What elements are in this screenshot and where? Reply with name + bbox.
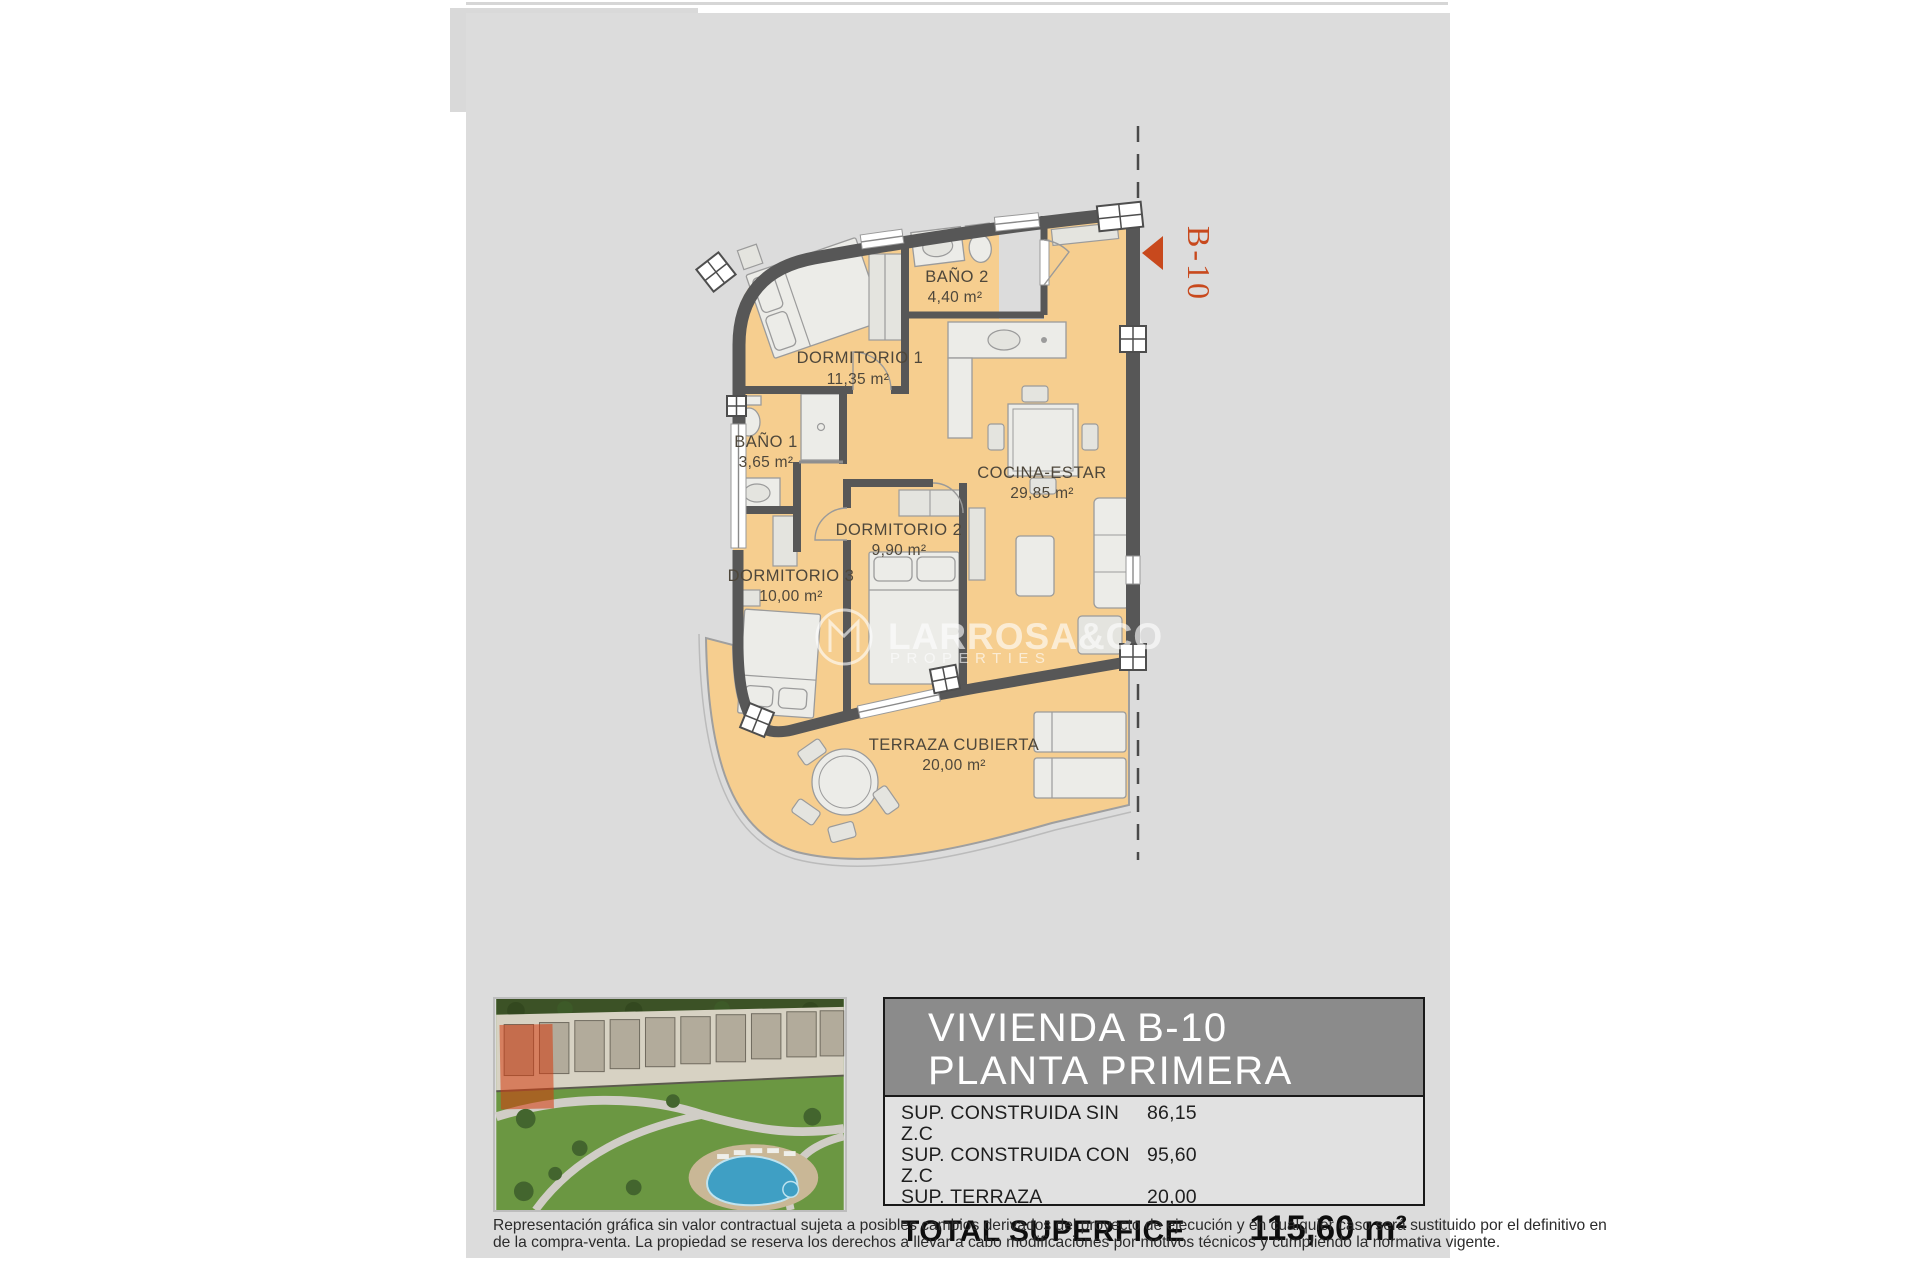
title-line-2: PLANTA PRIMERA — [928, 1050, 1423, 1093]
room-area-cocina-estar: 29,85 m² — [1010, 485, 1074, 502]
measurement-row: SUP. TERRAZA 20,00 — [901, 1187, 1409, 1208]
aerial-photo — [493, 997, 847, 1212]
disclaimer-line-2: de la compra-venta. La propiedad se rese… — [493, 1235, 1438, 1252]
room-area-dormitorio-2: 9,90 m² — [872, 542, 927, 559]
measurement-label: SUP. CONSTRUIDA CON Z.C — [901, 1145, 1147, 1187]
disclaimer-line-1: Representación gráfica sin valor contrac… — [493, 1218, 1438, 1235]
measurement-value: 20,00 — [1147, 1187, 1197, 1208]
measurement-label: SUP. CONSTRUIDA SIN Z.C — [901, 1103, 1147, 1145]
measurement-row: SUP. CONSTRUIDA SIN Z.C 86,15 — [901, 1103, 1409, 1145]
room-label-bano-2: BAÑO 2 — [925, 266, 989, 286]
room-label-terraza: TERRAZA CUBIERTA — [869, 736, 1040, 754]
plan-sheet-page: BAÑO 2 4,40 m² DORMITORIO 1 11,35 m² BAÑ… — [0, 0, 1920, 1280]
room-label-dormitorio-3: DORMITORIO 3 — [728, 567, 855, 585]
room-label-dormitorio-1: DORMITORIO 1 — [797, 349, 924, 367]
room-area-dormitorio-1: 11,35 m² — [827, 371, 889, 388]
room-area-dormitorio-3: 10,00 m² — [759, 588, 823, 605]
measurement-label: SUP. TERRAZA — [901, 1187, 1147, 1208]
room-label-cocina-estar: COCINA-ESTAR — [977, 464, 1106, 482]
unit-highlight-overlay — [499, 1024, 553, 1109]
measurement-row: SUP. CONSTRUIDA CON Z.C 95,60 — [901, 1145, 1409, 1187]
unit-arrow-icon — [1142, 236, 1163, 270]
room-area-terraza: 20,00 m² — [922, 757, 986, 774]
room-label-bano-1: BAÑO 1 — [734, 431, 798, 451]
room-area-bano-1: 3,65 m² — [739, 454, 794, 471]
measurement-value: 86,15 — [1147, 1103, 1197, 1145]
measurement-value: 95,60 — [1147, 1145, 1197, 1187]
unit-label: B-10 — [1181, 226, 1217, 302]
disclaimer: Representación gráfica sin valor contrac… — [493, 1218, 1438, 1251]
aerial-photo-image — [495, 999, 845, 1210]
unit-marker: B-10 — [1138, 126, 1217, 860]
title-line-1: VIVIENDA B-10 — [928, 1007, 1423, 1050]
info-panel: VIVIENDA B-10 PLANTA PRIMERA SUP. CONSTR… — [883, 997, 1425, 1206]
watermark-tagline: PROPERTIES — [890, 650, 1051, 667]
panel-title: VIVIENDA B-10 PLANTA PRIMERA — [885, 999, 1423, 1097]
room-label-dormitorio-2: DORMITORIO 2 — [836, 521, 963, 539]
room-area-bano-2: 4,40 m² — [928, 289, 983, 306]
